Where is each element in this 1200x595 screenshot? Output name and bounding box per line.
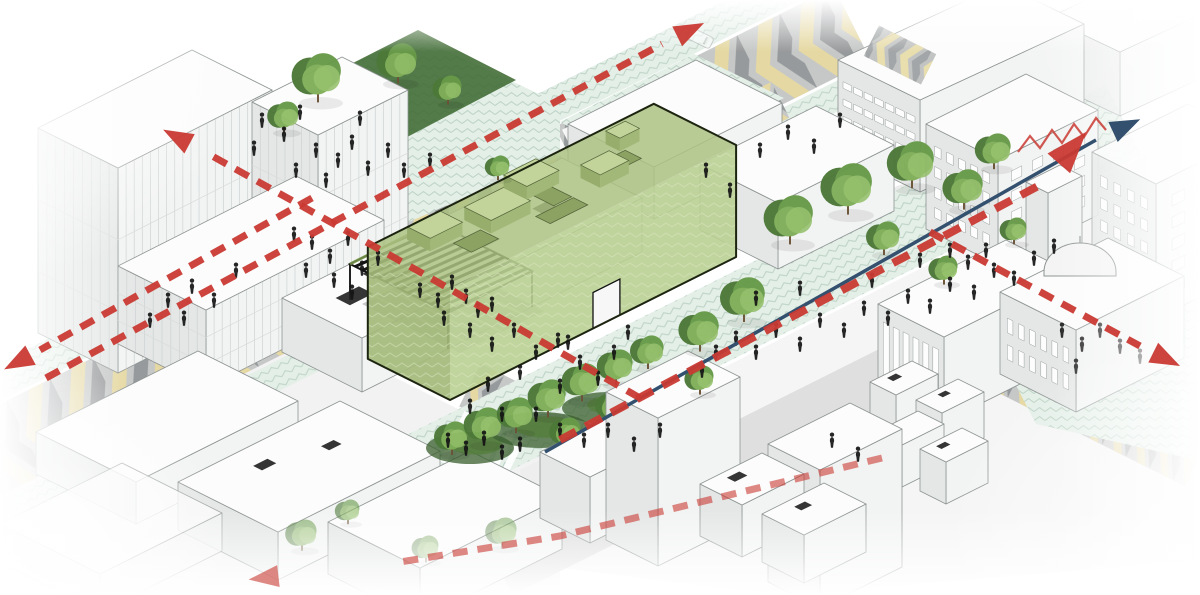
tree-canopy <box>545 389 565 409</box>
person-head <box>534 344 538 348</box>
person-head <box>304 262 308 266</box>
tree-shadow <box>490 178 512 184</box>
person-head <box>298 104 302 108</box>
window <box>1041 361 1047 379</box>
window <box>1030 329 1036 347</box>
person-head <box>358 110 362 114</box>
tree-canopy <box>960 179 982 201</box>
person-head <box>856 446 860 450</box>
person-head <box>386 142 390 146</box>
person-head <box>728 182 732 186</box>
person-head <box>838 112 842 116</box>
tree-canopy <box>513 406 532 425</box>
person-head <box>190 278 194 282</box>
person-head <box>992 262 996 266</box>
person-head <box>714 344 718 348</box>
person-head <box>212 292 216 296</box>
person-head <box>166 292 170 296</box>
person-head <box>632 436 636 440</box>
person-head <box>332 272 336 276</box>
tree-shadow <box>1005 242 1029 249</box>
window <box>1019 324 1025 342</box>
person-head <box>292 226 296 230</box>
person-head <box>260 112 264 116</box>
tree-shadow <box>383 79 419 89</box>
person-head <box>428 152 432 156</box>
person-head <box>182 310 186 314</box>
person-head <box>148 312 152 316</box>
tree-canopy <box>696 321 718 343</box>
person-head <box>704 162 708 166</box>
person-head <box>464 288 468 292</box>
person-head <box>324 172 328 176</box>
tree-canopy <box>941 263 957 279</box>
tree-shadow <box>828 209 874 222</box>
person-head <box>490 336 494 340</box>
person-head <box>512 322 516 326</box>
tree-canopy <box>445 83 461 99</box>
person-head <box>500 444 504 448</box>
person-head <box>328 248 332 252</box>
person-head <box>490 296 494 300</box>
person-head <box>818 312 822 316</box>
person-head <box>252 140 256 144</box>
person-head <box>436 292 440 296</box>
person-head <box>336 152 340 156</box>
person-head <box>754 344 758 348</box>
person-head <box>486 376 490 380</box>
tree-canopy <box>908 153 933 178</box>
person-head <box>442 310 446 314</box>
tree-shadow <box>894 183 936 195</box>
tree-shadow <box>438 101 464 108</box>
window <box>1007 318 1013 335</box>
person-head <box>918 252 922 256</box>
tree-canopy <box>314 65 340 91</box>
person-head <box>366 160 370 164</box>
person-head <box>500 406 504 410</box>
tree-canopy <box>1012 224 1026 238</box>
tree-shadow <box>727 317 767 328</box>
person-head <box>556 332 560 336</box>
person-head <box>464 440 468 444</box>
person-head <box>758 142 762 146</box>
person-head <box>886 310 890 314</box>
person-head <box>966 254 970 258</box>
tree-canopy <box>394 53 416 75</box>
person-head <box>812 138 816 142</box>
person-head <box>282 126 286 130</box>
window <box>1019 350 1025 367</box>
person-head <box>972 284 976 288</box>
person-body <box>566 339 570 350</box>
person-head <box>234 262 238 266</box>
person-head <box>350 134 354 138</box>
person-head <box>842 322 846 326</box>
person <box>518 364 522 379</box>
person-head <box>658 422 662 426</box>
tree-canopy <box>496 162 509 175</box>
tree-shadow <box>981 165 1013 174</box>
person-head <box>518 364 522 368</box>
tree-canopy <box>281 109 298 126</box>
person-head <box>948 276 952 280</box>
tree-shadow <box>299 97 343 109</box>
person-head <box>582 432 586 436</box>
person-head <box>1032 250 1036 254</box>
tree-canopy <box>740 288 764 312</box>
tree-shadow <box>273 129 301 137</box>
person-head <box>518 436 522 440</box>
person-head <box>906 288 910 292</box>
person-head <box>786 124 790 128</box>
person-head <box>446 432 450 436</box>
diagram-canvas <box>0 0 1200 595</box>
tree-shadow <box>690 391 716 398</box>
window <box>883 322 889 379</box>
tree-canopy <box>579 373 599 393</box>
person-head <box>862 300 866 304</box>
window <box>1041 335 1047 352</box>
person <box>566 334 570 349</box>
tree-canopy <box>449 430 467 448</box>
tree-canopy <box>645 344 663 362</box>
person-head <box>350 284 354 288</box>
tree-shadow <box>470 441 504 451</box>
person-head <box>798 280 802 284</box>
person-head <box>734 330 738 334</box>
person-head <box>626 324 630 328</box>
person-head <box>798 336 802 340</box>
tree-canopy <box>991 142 1010 161</box>
person-head <box>314 142 318 146</box>
person-head <box>558 422 562 426</box>
tree-canopy <box>881 230 899 248</box>
person-head <box>360 260 364 264</box>
person-head <box>450 274 454 278</box>
person-head <box>402 162 406 166</box>
person-head <box>566 334 570 338</box>
tree-shadow <box>771 239 815 251</box>
person-head <box>984 242 988 246</box>
person-head <box>468 398 472 402</box>
person-head <box>830 432 834 436</box>
tree-canopy <box>697 373 713 389</box>
tree-canopy <box>843 176 871 204</box>
person-head <box>418 282 422 286</box>
tree-canopy <box>786 207 812 233</box>
person-head <box>294 162 298 166</box>
person-head <box>578 354 582 358</box>
person-head <box>558 378 562 382</box>
window <box>1030 356 1036 373</box>
person-head <box>534 406 538 410</box>
tree-shadow <box>934 281 960 288</box>
person-head <box>482 430 486 434</box>
urban-site-circulation-diagram <box>0 0 1200 595</box>
person-head <box>1012 270 1016 274</box>
window <box>1007 345 1013 363</box>
person-head <box>612 344 616 348</box>
tree-canopy <box>613 358 632 377</box>
person-head <box>606 422 610 426</box>
person-head <box>928 298 932 302</box>
person-head <box>754 290 758 294</box>
person-head <box>468 322 472 326</box>
